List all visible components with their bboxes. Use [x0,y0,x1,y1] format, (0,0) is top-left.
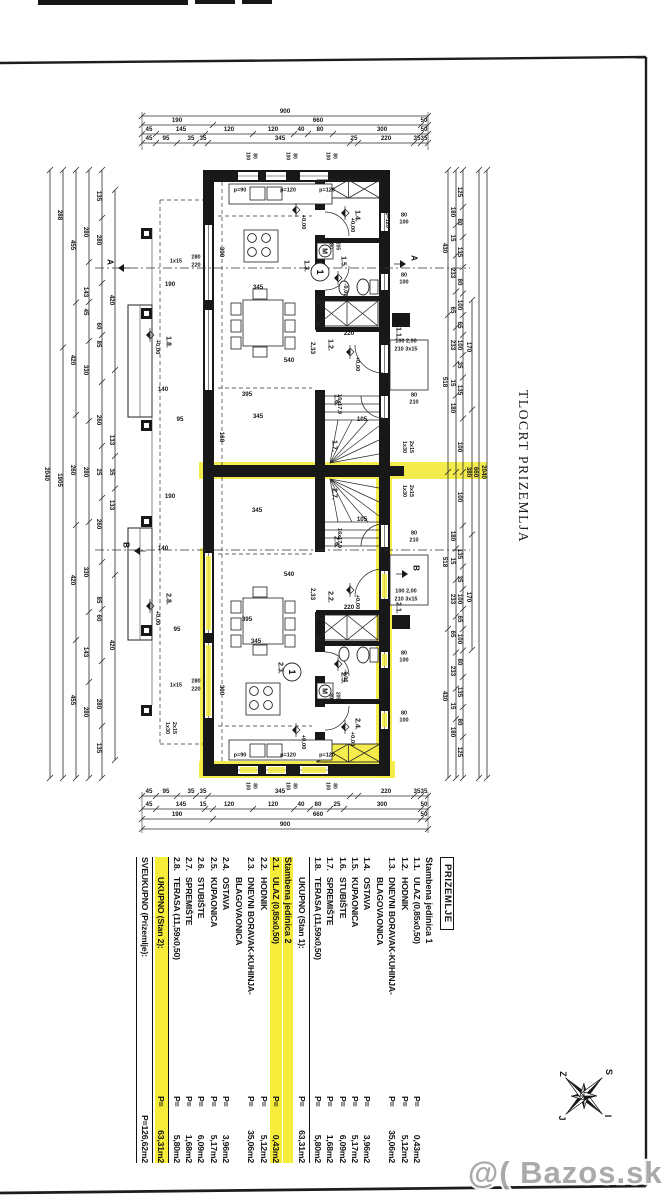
dimension-label: 80 [317,127,324,133]
compass-letter-z: Z [558,1071,568,1077]
legend-row-continuation: BLAGOVAONICA [373,857,385,1163]
legend-row: 1.3.DNEVNI BORAVAK-KUHINJA-P=35,06m2 [386,857,398,1163]
plan-label: 16x17,9 [335,394,341,414]
legend-area-value: 3,96m2 [361,1113,373,1163]
dimension-label: 50 [421,118,428,124]
dimension-label: 660 [313,812,323,818]
legend-row-number: 1.4. [361,857,373,877]
legend-area-value: 6,09m2 [195,1113,207,1163]
legend-area-prefix: P= [220,1096,232,1113]
legend-text [373,1113,385,1163]
plan-label: 100 [245,152,250,160]
legend-row: 2.6.STUBIŠTEP=6,09m2 [195,857,207,1163]
legend-row: 2.2.HODNIKP=5,12m2 [257,857,269,1163]
plan-label: 80 [252,153,257,159]
plan-label: 395 [242,617,252,623]
dimension-label: 170 [465,592,471,602]
room-number-label: 2.4. [354,718,361,730]
dimension-label: 85 [95,341,101,348]
legend-room-name: KUPAONICA [349,877,361,1096]
dimension-label: 65 [449,307,455,314]
dimension-label: 35 [108,469,114,476]
dimension-label: 280 [82,707,88,717]
legend-area-value: 6,09m2 [336,1113,348,1163]
dimension-label: 455 [69,695,75,705]
legend-room-name: STUBIŠTE [195,877,207,1096]
compass-letter-i: I [603,1115,613,1118]
legend-area-value: 5,80m2 [311,1113,323,1163]
legend-area-prefix: P= [386,1096,398,1113]
room-number-label: 1.8. [165,336,172,348]
dimension-label: 180 [449,403,455,413]
plan-label: 220 [344,331,354,337]
plan-label: 100 2,00 [395,589,416,595]
legend-row: 2.4.OSTAVAP=3,96m2 [220,857,232,1163]
plan-label: 2x15 [170,722,176,734]
plan-label: 100 2,00 [395,339,416,345]
legend-area-value: 0,43m2 [270,1113,282,1163]
dimension-label: 35 [456,576,462,583]
plan-label: 2x15 [407,485,413,497]
plan-label: p=120 [319,188,335,194]
dimension-label: 2040 [480,465,486,479]
legend-section-header: Stambena jedinica 1 [424,857,434,1163]
dimension-label: 330 [82,567,88,577]
dimension-label: 15 [449,703,455,710]
plan-label: p=120 [280,753,296,759]
legend-area-value: 5,17m2 [349,1113,361,1163]
section-marker-b: B [122,542,131,548]
plan-label: 100 [399,280,408,286]
dimension-label: 220 [381,136,391,142]
legend-row: 1.8.TERASA (11,59x0,50)P=5,80m2 [311,857,323,1163]
dimension-label: 65 [456,322,462,329]
legend-area-value: 35,06m2 [386,1113,398,1163]
legend-area-prefix: P= [155,1096,167,1113]
plan-label: 190 [165,282,175,288]
dimension-label: 35 [421,789,428,795]
elevation-marker-label: +0,00 [354,357,360,372]
plan-label: 1x15 [170,259,182,265]
plan-label: 80 [292,153,297,159]
dimension-label: 518 [441,377,447,387]
plan-label: 80 [411,393,417,399]
legend-area-prefix: P= [361,1096,373,1113]
dimension-label: 125 [456,187,462,197]
legend-area-prefix: P= [170,1096,182,1113]
plan-label: 1x30 [400,441,406,453]
legend-total-row: UKUPNO (Stan 1):P=63,31m2 [296,857,310,1163]
section-marker-b: B [412,565,421,571]
legend-room-name: BLAGOVAONICA [373,877,385,1096]
legend-text [232,1096,244,1113]
dimension-label: 900 [280,822,290,828]
plan-label: 16x17,9 [335,528,341,548]
plan-label: 100 [285,782,290,790]
dimension-label: 120 [224,802,234,808]
plan-label: 220 [191,687,200,693]
legend-room-name: OSTAVA [361,877,373,1096]
dimension-label: 260 [69,465,75,475]
legend-area-value: 1,68m2 [324,1113,336,1163]
plan-label: p=120 [383,692,389,708]
dimension-label: 35 [456,362,462,369]
plan-label: p=120 [319,753,335,759]
dimension-label: 120 [268,802,278,808]
dimension-label: 420 [108,640,114,650]
legend-room-name: DNEVNI BORAVAK-KUHINJA- [386,877,398,1096]
legend-row-number: 1.8. [311,857,323,877]
plan-label: 345 [253,285,263,291]
dimension-label: 660 [313,118,323,124]
plan-label: 80 [401,273,407,279]
dimension-label: 100 [456,442,462,452]
plan-label: 280 [191,679,200,685]
dimension-label: 143 [82,647,88,657]
legend-row-number: 1.5. [349,857,361,877]
legend-room-name: OSTAVA [220,877,232,1096]
room-number-label: 1.2. [327,339,334,351]
legend-room-name: DNEVNI BORAVAK-KUHINJA- [245,877,257,1096]
legend-text [296,857,308,877]
dimension-label: 660 [472,467,478,477]
legend-grand-total-value: P=126,62m2 [138,1113,150,1163]
legend-row: 1.1.ULAZ (0,85x0,50)P=0,43m2 [411,857,423,1163]
dimension-label: 35 [200,136,207,142]
dimension-label: 233 [449,268,455,278]
dimension-label: 45 [146,802,153,808]
legend-area-value: 63,31m2 [155,1113,167,1163]
dimension-label: 133 [108,500,114,510]
legend-room-name: STUBIŠTE [336,877,348,1096]
legend-room-name: TERASA (11,59x0,50) [311,877,323,1096]
dimension-label: 135 [95,191,101,201]
legend-row-number: 2.5. [208,857,220,877]
plan-label: 80 [292,783,297,789]
plan-label: 80 [401,711,407,717]
plan-label: 80 [332,783,337,789]
plan-label: 300 [218,685,224,695]
legend-room-name: SPREMIŠTE [324,877,336,1096]
legend-room-name: HODNIK [398,877,410,1096]
dimension-label: 1905 [56,473,62,487]
plan-label: 210 [409,538,418,544]
dimension-label: 80 [456,659,462,666]
plan-label: 205 [335,242,340,250]
compass-letter-s: S [604,1069,614,1075]
plan-label: 2,33 [309,588,315,600]
legend-room-name: BLAGOVAONICA [232,877,244,1096]
dimension-label: 85 [95,597,101,604]
legend-section-header: Stambena jedinica 2 [283,857,293,1163]
legend-row: 2.8.TERASA (11,59x0,50)P=5,80m2 [170,857,182,1163]
legend-area-value: 3,96m2 [220,1113,232,1163]
legend-row-number: 2.2. [257,857,269,877]
dimension-label: 120 [268,127,278,133]
legend-text [155,857,167,877]
legend-area-prefix: P= [195,1096,207,1113]
plan-label: 100 [245,782,250,790]
plan-label: 540 [284,572,294,578]
legend-row: 1.5.KUPAONICAP=5,17m2 [349,857,361,1163]
legend-area-prefix: P= [257,1096,269,1113]
dimension-label: 45 [146,789,153,795]
elevation-marker-label: -0,01 [342,283,348,296]
dimension-label: 15 [449,380,455,387]
plan-label: 540 [284,358,294,364]
legend-area-value: 1,68m2 [183,1113,195,1163]
plan-label: 105 [357,517,367,523]
dimension-label: 50 [421,802,428,808]
legend-grand-total-label: SVEUKUPNO (Prizemlje): [138,857,150,1113]
elevation-marker-label: +0,00 [349,218,355,233]
dimension-label: 180 [449,207,455,217]
dimension-label: 430 [441,691,447,701]
plan-label: 345 [253,414,263,420]
dimension-label: 60 [95,323,101,330]
legend-row-number: 2.4. [220,857,232,877]
plan-label: 80 [401,213,407,219]
legend-area-prefix: P= [270,1096,282,1113]
dimension-label: 25 [95,469,101,476]
dimension-label: 15 [200,802,207,808]
legend-total-label: UKUPNO (Stan 1): [296,877,308,1096]
elevation-marker-label: +0,00 [354,595,360,610]
legend-row-number: 1.2. [398,857,410,877]
plan-label: 105 [357,417,367,423]
plan-label: 80 [328,693,333,699]
dimension-label: 40 [298,802,305,808]
dimension-label: 518 [441,557,447,567]
legend-area-value: 5,17m2 [208,1113,220,1163]
dimension-label: 80 [456,219,462,226]
dimension-label: 280 [95,699,101,709]
dimension-label: 280 [82,227,88,237]
plan-label: 210 3x15 [395,597,418,603]
section-marker-a: A [106,259,115,265]
legend-area-value: 5,12m2 [257,1113,269,1163]
legend-area-value: 35,06m2 [245,1113,257,1163]
legend-row-number: 1.1. [411,857,423,877]
legend-row: 2.5.KUPAONICAP=5,17m2 [208,857,220,1163]
dimension-label: 35 [414,136,421,142]
dimension-label: 190 [172,812,182,818]
legend-row: 1.2.HODNIKP=5,12m2 [398,857,410,1163]
dimension-label: 260 [95,519,101,529]
legend-text [373,857,385,877]
legend-area-prefix: P= [398,1096,410,1113]
dimension-label: 220 [381,789,391,795]
legend-area-value: 0,43m2 [411,1113,423,1163]
dimension-label: 135 [95,743,101,753]
dimension-label: 100 [456,594,462,604]
plan-label: 345 [252,508,262,514]
room-number-label: 2.7. [331,488,338,500]
room-legend-table: PRIZEMLJEStambena jedinica 11.1.ULAZ (0,… [126,857,458,1163]
legend-text [373,1096,385,1113]
section-marker-a: A [410,255,419,261]
plan-label: 80 [328,243,333,249]
plan-label: 300 [218,247,224,257]
dimension-label: 65 [456,616,462,623]
plan-label: 100 [325,152,330,160]
legend-area-prefix: P= [183,1096,195,1113]
plan-label: 345 [251,639,261,645]
dimension-label: 260 [95,415,101,425]
dimension-label: 35 [188,136,195,142]
plan-label: 95 [174,627,181,633]
plan-label: 1x15 [170,683,182,689]
plan-label: 210 [409,400,418,406]
legend-row-number: 2.1. [270,857,282,877]
dimension-label: 420 [108,295,114,305]
dimension-label: 190 [172,118,182,124]
dimension-label: 50 [421,812,428,818]
legend-row: 2.3.DNEVNI BORAVAK-KUHINJA-P=35,06m2 [245,857,257,1163]
dimension-label: 35 [414,789,421,795]
elevation-marker-label: +0,00 [154,340,160,355]
dimension-label: 135 [456,247,462,257]
plan-label: 100 [285,152,290,160]
elevation-marker-label: +0,00 [300,215,306,230]
dimension-label: 65 [449,631,455,638]
dimension-label: 170 [465,342,471,352]
plan-label: 100 [399,718,408,724]
legend-text [232,1113,244,1163]
legend-total-row: UKUPNO (Stan 2):P=63,31m2 [155,857,169,1163]
dimension-label: 430 [441,243,447,253]
dimension-label: 133 [108,435,114,445]
watermark: @( Bazos.sk [468,1155,663,1190]
plan-label: 95 [177,417,184,423]
dimension-label: 35 [200,789,207,795]
elevation-marker-label: +0,00 [154,611,160,626]
room-number-label: 2.2. [327,591,334,603]
legend-row-number: 2.6. [195,857,207,877]
plan-label: 80 [332,153,337,159]
legend-row: 2.1.ULAZ (0,85x0,50)P=0,43m2 [270,857,282,1163]
legend-room-name: ULAZ (0,85x0,50) [411,877,423,1096]
scanned-floor-plan-page: 11MMZSJI@( Bazos.sk TLOCRT PRIZEMLJA PRI… [0,0,670,1200]
dimension-label: 2040 [43,467,49,481]
plan-label: 2x15 [407,441,413,453]
dimension-label: 45 [82,309,88,316]
dimension-label: 145 [176,127,186,133]
plan-label: 80 [411,531,417,537]
dimension-label: 125 [456,747,462,757]
page-title: TLOCRT PRIZEMLJA [515,390,531,560]
legend-row: 1.4.OSTAVAP=3,96m2 [361,857,373,1163]
legend-grand-total-row: SVEUKUPNO (Prizemlje):P=126,62m2 [136,857,152,1163]
plan-label: 100 [325,782,330,790]
dimension-label: 135 [456,385,462,395]
elevation-marker-label: -0,01 [342,669,348,682]
plan-label: 100 [399,220,408,226]
legend-text [232,857,244,877]
room-number-label: 1.1. [395,327,402,339]
dimension-label: 45 [146,127,153,133]
svg-text:1: 1 [315,269,325,274]
legend-room-name: TERASA (11,59x0,50) [170,877,182,1096]
legend-area-prefix: P= [245,1096,257,1113]
plan-label: p=90 [234,753,247,759]
dimension-label: 233 [449,340,455,350]
plan-label: 80 [401,651,407,657]
legend-room-name: HODNIK [257,877,269,1096]
dimension-label: 455 [69,240,75,250]
dimension-label: 345 [275,136,285,142]
elevation-marker-label: +0,00 [349,732,355,747]
plan-label: 395 [242,392,252,398]
dimension-label: 25 [334,802,341,808]
legend-row: 1.7.SPREMIŠTEP=1,68m2 [324,857,336,1163]
dimension-label: 280 [82,467,88,477]
plan-label: 80 [252,783,257,789]
dimension-label: 420 [69,575,75,585]
plan-label: 190 [165,494,175,500]
plan-label: 140 [158,387,168,393]
dimension-label: 300 [377,127,387,133]
plan-label: 2,33 [309,342,315,354]
legend-total-label: UKUPNO (Stan 2): [155,877,167,1096]
legend-row-number: 2.3. [245,857,257,877]
legend-area-prefix: P= [411,1096,423,1113]
dimension-label: 15 [449,235,455,242]
plan-label: 1x30 [400,485,406,497]
dimension-label: 280 [95,235,101,245]
dimension-label: 60 [95,615,101,622]
legend-area-prefix: P= [296,1096,308,1113]
dimension-label: 180 [449,727,455,737]
dimension-label: 95 [163,136,170,142]
legend-room-name: KUPAONICA [208,877,220,1096]
dimension-label: 420 [69,355,75,365]
elevation-marker-label: +0,00 [300,735,306,750]
room-number-label: 2.3. [277,662,284,674]
legend-area-prefix: P= [324,1096,336,1113]
dimension-label: 15 [449,558,455,565]
dimension-label: 80 [315,802,322,808]
plan-label: 100 [399,658,408,664]
legend-room-name: SPREMIŠTE [183,877,195,1096]
legend-row: 1.6.STUBIŠTEP=6,09m2 [336,857,348,1163]
dimension-label: 25 [351,136,358,142]
dimension-label: 330 [82,365,88,375]
legend-room-name: ULAZ (0,85x0,50) [270,877,282,1096]
legend-area-value: 63,31m2 [296,1113,308,1163]
dimension-label: 135 [456,549,462,559]
svg-text:1: 1 [287,669,297,674]
dimension-label: 35 [421,136,428,142]
dimension-label: 135 [456,687,462,697]
plan-label: 205 [335,692,340,700]
dimension-label: 233 [449,594,455,604]
room-number-label: 2.8. [165,593,172,605]
legend-area-prefix: P= [311,1096,323,1113]
dimension-label: 100 [456,340,462,350]
legend-area-value: 5,12m2 [398,1113,410,1163]
legend-row-number: 1.3. [386,857,398,877]
plan-label: 140 [158,546,168,552]
dimension-label: 100 [456,492,462,502]
dimension-label: 288 [56,210,62,220]
dimension-label: 900 [280,109,290,115]
legend-row: 2.7.SPREMIŠTEP=1,68m2 [183,857,195,1163]
dimension-label: 80 [456,719,462,726]
dimension-label: 180 [449,531,455,541]
dimension-label: 45 [146,136,153,142]
compass-letter-j: J [557,1115,567,1120]
